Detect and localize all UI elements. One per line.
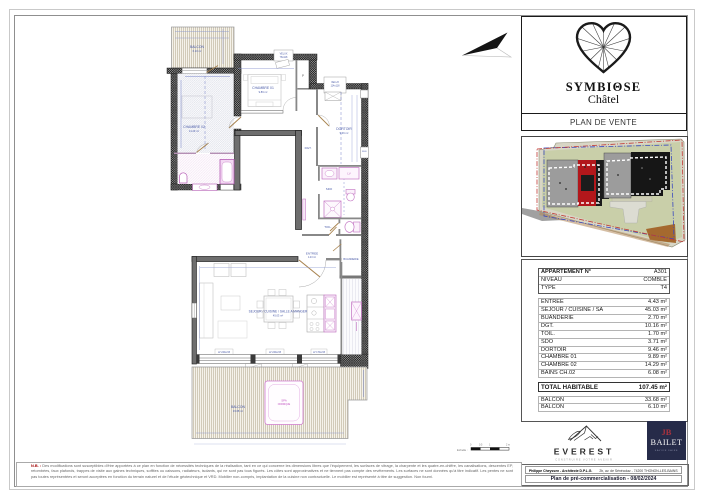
svg-text:1: 1 xyxy=(489,444,491,447)
svg-text:CHAMBRE 01: CHAMBRE 01 xyxy=(252,86,274,90)
svg-text:Echelle :: Echelle : xyxy=(457,448,468,452)
svg-text:TOIL.: TOIL. xyxy=(324,225,332,229)
svg-text:78x118: 78x118 xyxy=(280,56,288,59)
svg-text:SDO: SDO xyxy=(326,187,333,191)
svg-text:0: 0 xyxy=(470,444,472,447)
svg-text:LV 240x215: LV 240x215 xyxy=(269,352,282,354)
svg-text:LV 240x215: LV 240x215 xyxy=(218,352,231,354)
svg-text:BALCON: BALCON xyxy=(231,405,245,409)
svg-text:45.03 m²: 45.03 m² xyxy=(273,314,283,318)
svg-text:CONSTRUIRE VOTRE AVENIR: CONSTRUIRE VOTRE AVENIR xyxy=(555,458,613,462)
svg-text:2 m: 2 m xyxy=(506,444,510,447)
svg-text:SPA: SPA xyxy=(281,399,287,403)
svg-text:EVEREST: EVEREST xyxy=(554,447,614,457)
svg-text:DGT.: DGT. xyxy=(305,146,312,150)
svg-text:9.89 m²: 9.89 m² xyxy=(259,90,268,94)
svg-text:4.43 m²: 4.43 m² xyxy=(308,256,316,259)
svg-text:ENTREE: ENTREE xyxy=(306,252,318,256)
svg-text:0.5: 0.5 xyxy=(479,444,483,447)
svg-text:CHAMBRE 02: CHAMBRE 02 xyxy=(183,125,205,129)
svg-text:FEN.: FEN. xyxy=(362,151,367,153)
svg-text:LV 170x215: LV 170x215 xyxy=(313,352,326,354)
svg-text:P: P xyxy=(302,74,305,78)
svg-text:114x118: 114x118 xyxy=(331,85,340,88)
svg-text:DORTOIR: DORTOIR xyxy=(336,127,352,131)
svg-text:14.29 m²: 14.29 m² xyxy=(189,129,199,133)
svg-text:BALCON: BALCON xyxy=(190,45,204,49)
svg-text:9.46 m²: 9.46 m² xyxy=(340,131,349,135)
svg-text:33.68 m²: 33.68 m² xyxy=(233,409,243,413)
svg-text:SEJOUR / CUISINE / SALLE A MAN: SEJOUR / CUISINE / SALLE A MANGER xyxy=(249,310,308,314)
svg-text:BUANDERIE: BUANDERIE xyxy=(343,257,358,261)
svg-text:LV: LV xyxy=(347,172,350,176)
svg-text:6.10 m²: 6.10 m² xyxy=(193,49,202,53)
svg-text:NORDIQUE: NORDIQUE xyxy=(278,404,291,406)
